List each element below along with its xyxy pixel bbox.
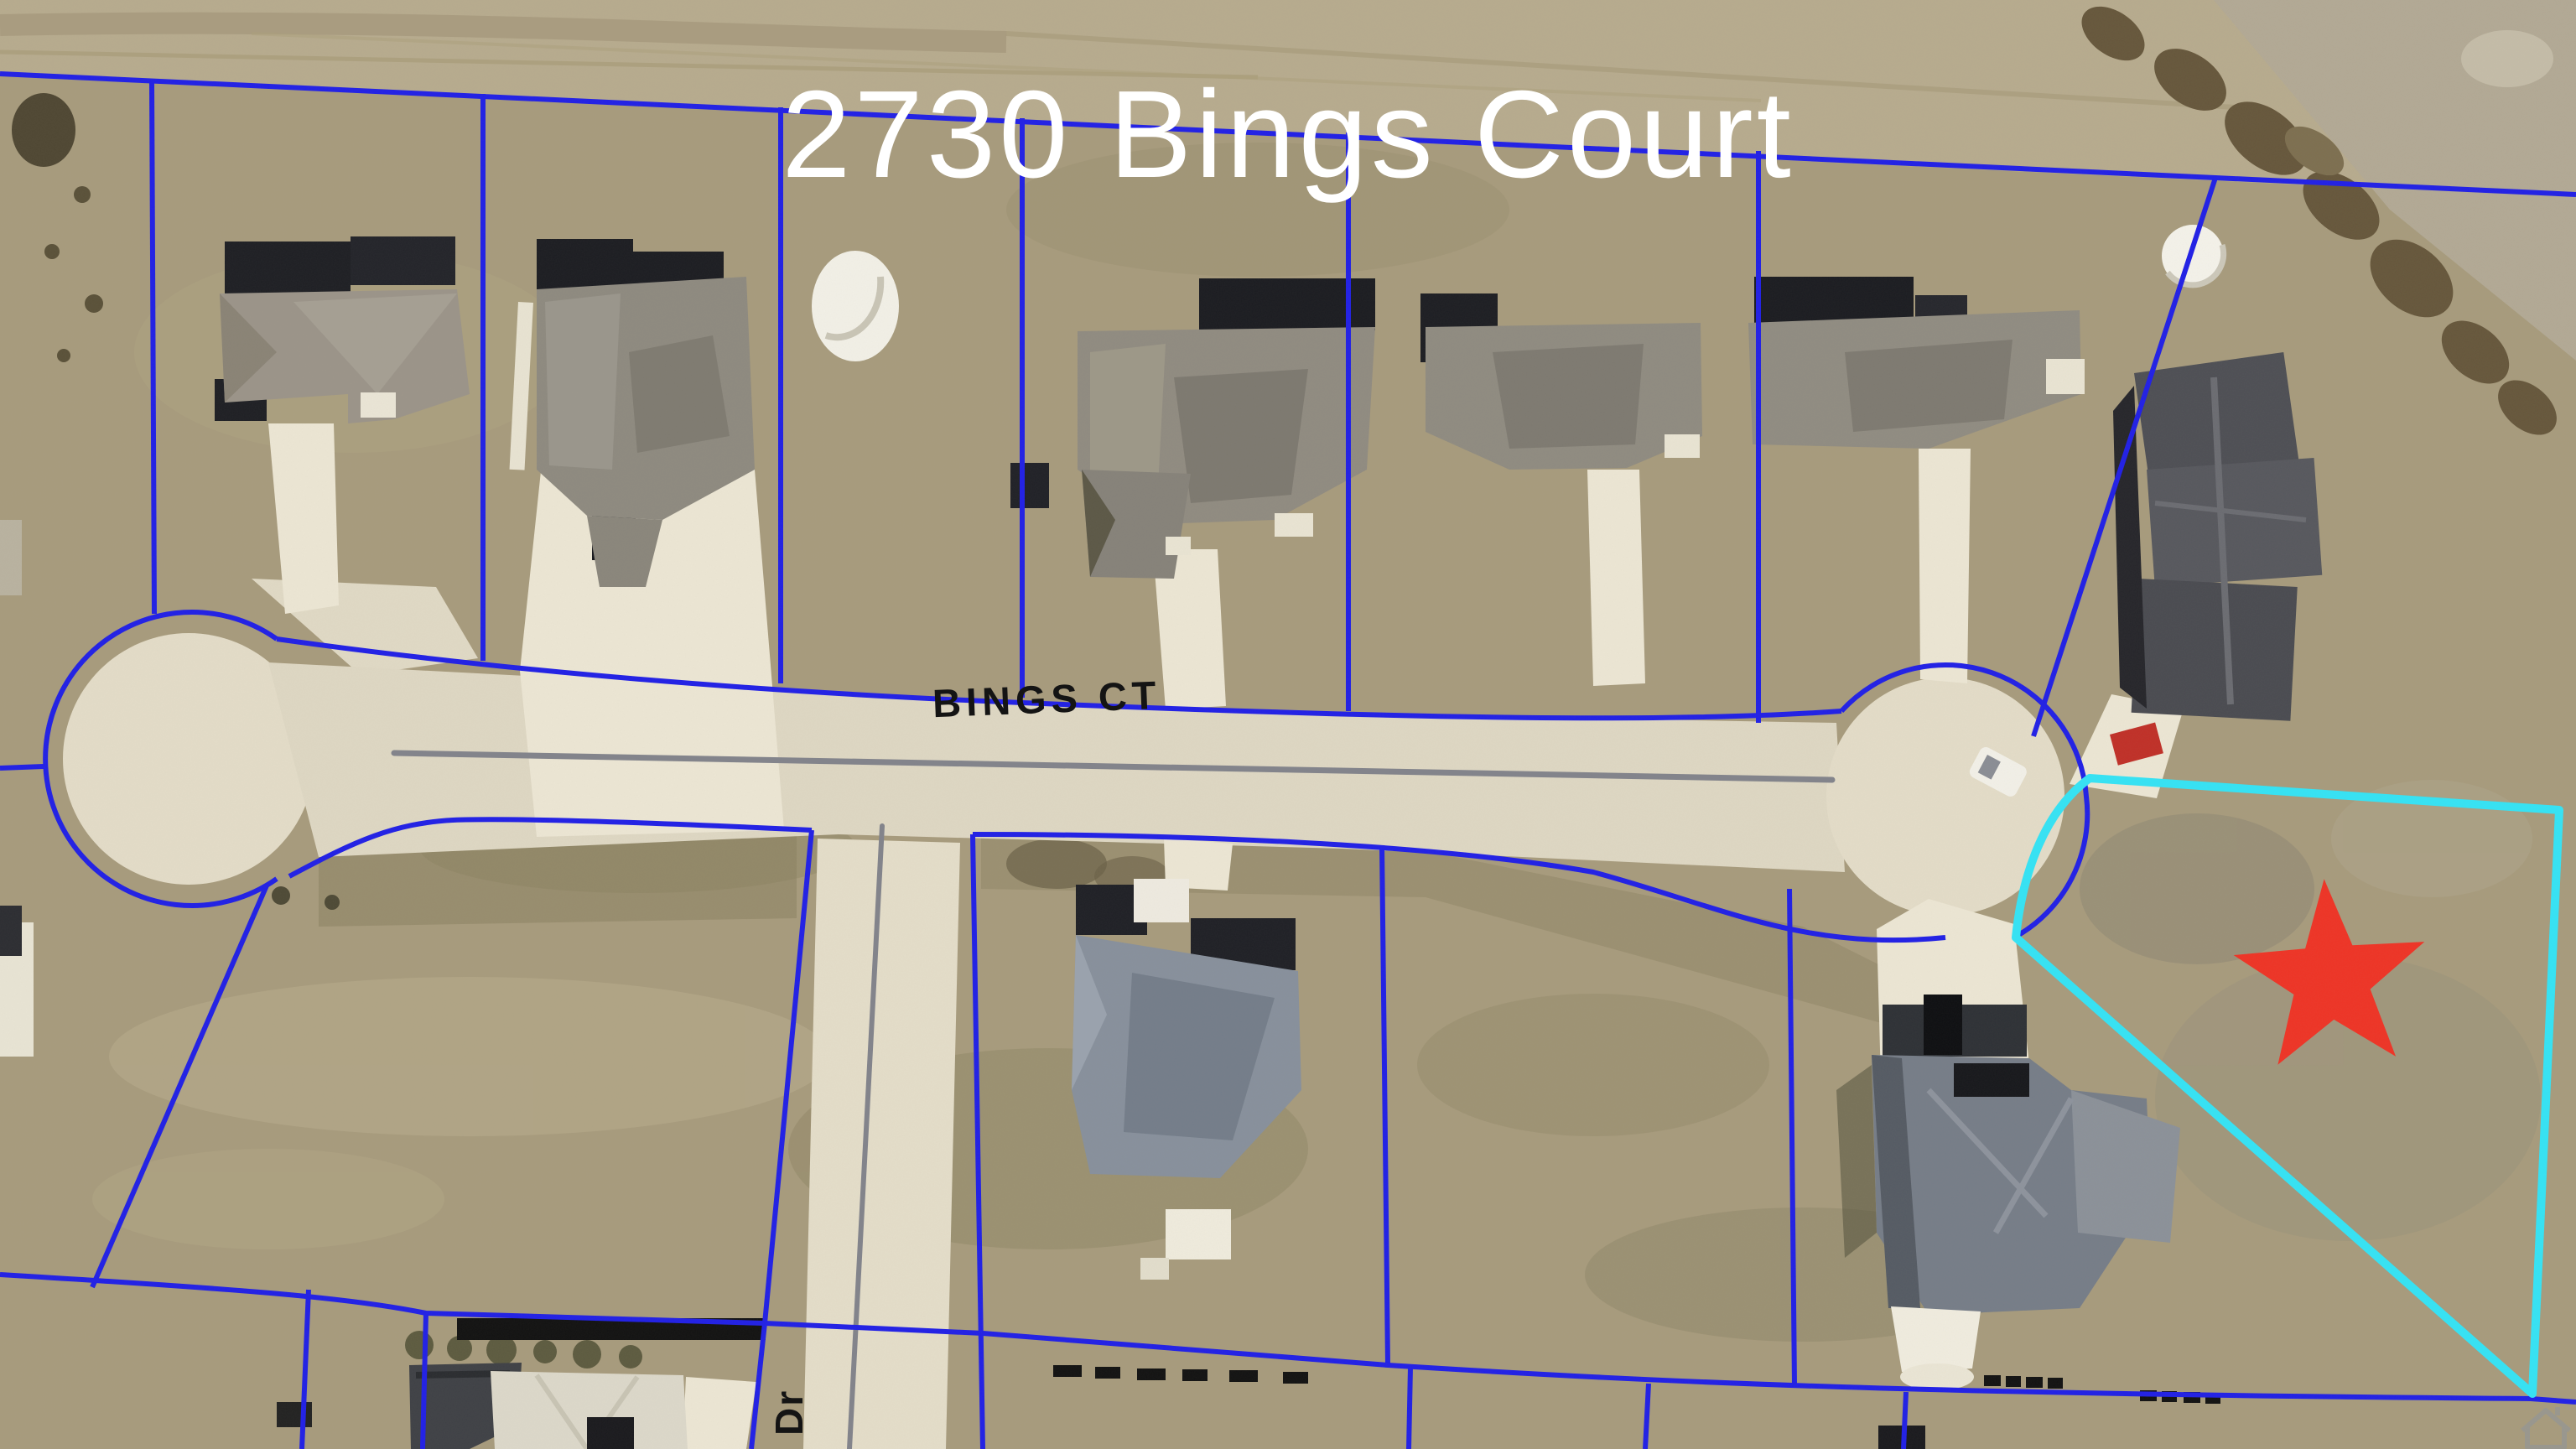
street-label-dr: Dr: [766, 1389, 812, 1436]
aerial-scene: [0, 0, 2576, 1449]
street-label-bings-ct: BINGS CT: [932, 672, 1161, 726]
grain-overlay: [0, 0, 2576, 1449]
aerial-map: 2730 Bings Court BINGS CT Dr: [0, 0, 2576, 1449]
page-title: 2730 Bings Court: [782, 64, 1794, 206]
